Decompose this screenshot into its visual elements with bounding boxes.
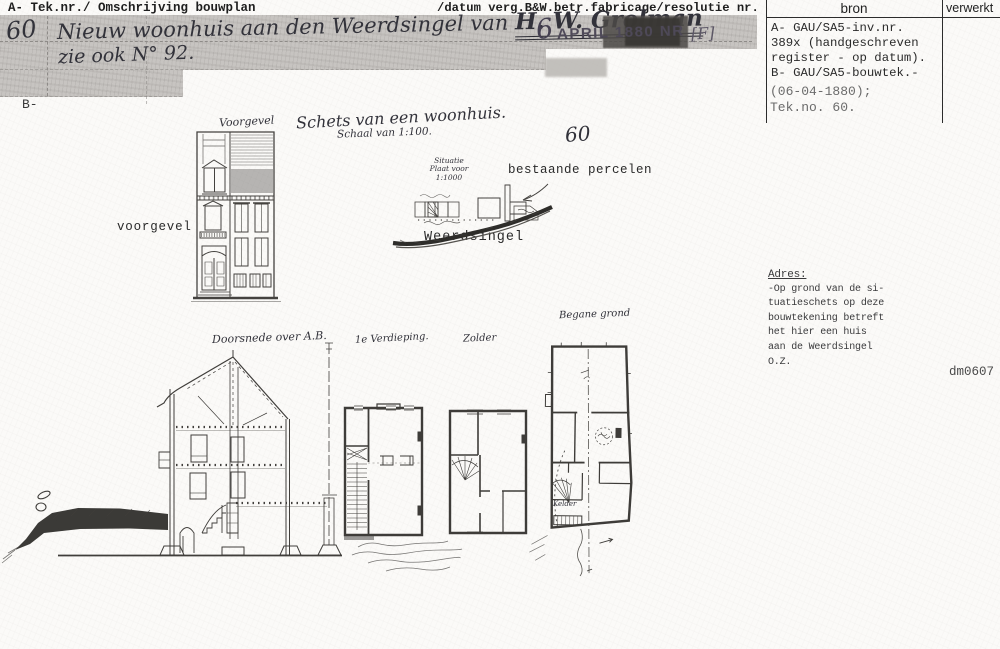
plan-zolder-sketch <box>445 405 535 537</box>
archive-card: A- Tek.nr./ Omschrijving bouwplan /datum… <box>0 0 1000 649</box>
bron-line: register - op datum). <box>771 51 926 66</box>
strip-ruled-line-2 <box>0 69 544 70</box>
adres-line: -Op grond van de si- <box>768 283 884 298</box>
section-b-label: B- <box>22 97 38 112</box>
verdieping-label-hand: 1e Verdieping. <box>355 331 429 346</box>
verwerkt-header: verwerkt <box>946 1 993 15</box>
situatie-sketch <box>390 150 575 255</box>
table-border-left <box>766 0 767 123</box>
cross-section-sketch <box>0 325 345 575</box>
bron-line-light: (06-04-1880); <box>770 84 871 100</box>
sheet-scale-hand: Schaal van 1:100. <box>337 125 432 140</box>
handwritten-note-scribble <box>338 534 513 582</box>
header-left: A- Tek.nr./ Omschrijving bouwplan <box>8 1 256 15</box>
register-strip-row3 <box>0 70 183 97</box>
plan-begane-grond-sketch <box>525 333 650 588</box>
bron-cell: A- GAU/SA5-inv.nr. 389x (handgeschreven … <box>771 21 926 81</box>
adres-line: aan de Weerdsingel <box>768 341 884 356</box>
strip-column-divider <box>47 16 48 96</box>
adres-heading: Adres: <box>768 268 884 283</box>
bron-header: bron <box>766 1 942 16</box>
footer-code: dm0607 <box>949 365 994 379</box>
entry-description-text: Nieuw woonhuis aan den Weerdsingel van <box>57 11 509 44</box>
bron-line: 389x (handgeschreven <box>771 36 926 51</box>
adres-line: tuatieschets op deze <box>768 297 884 312</box>
plan-verdieping-sketch <box>340 402 430 542</box>
adres-line: O.Z. <box>768 356 884 371</box>
table-header-rule <box>766 17 1000 18</box>
entry-number-hand: 60 <box>5 14 38 45</box>
bron-cell-light: (06-04-1880); Tek.no. 60. <box>770 84 871 116</box>
sheet-number-hand: 60 <box>564 121 591 147</box>
stamp-mark: [F] <box>691 23 716 43</box>
bron-line: B- GAU/SA5-bouwtek.- <box>771 66 926 81</box>
date-stamp: APRIL 1880 NR <box>557 22 685 42</box>
adres-note: Adres: -Op grond van de si- tuatieschets… <box>768 268 884 370</box>
bron-line-light: Tek.no. 60. <box>770 100 871 116</box>
bron-line: A- GAU/SA5-inv.nr. <box>771 21 926 36</box>
begane-grond-label-hand: Begane grond <box>559 308 631 321</box>
adres-line: het hier een huis <box>768 326 884 341</box>
voorgevel-label-typed: voorgevel <box>117 220 192 234</box>
table-border-mid <box>942 0 943 123</box>
facade-elevation-sketch <box>183 126 287 304</box>
zolder-label-hand: Zolder <box>463 332 497 344</box>
smudge-light <box>545 58 607 77</box>
adres-line: bouwtekening betreft <box>768 312 884 327</box>
